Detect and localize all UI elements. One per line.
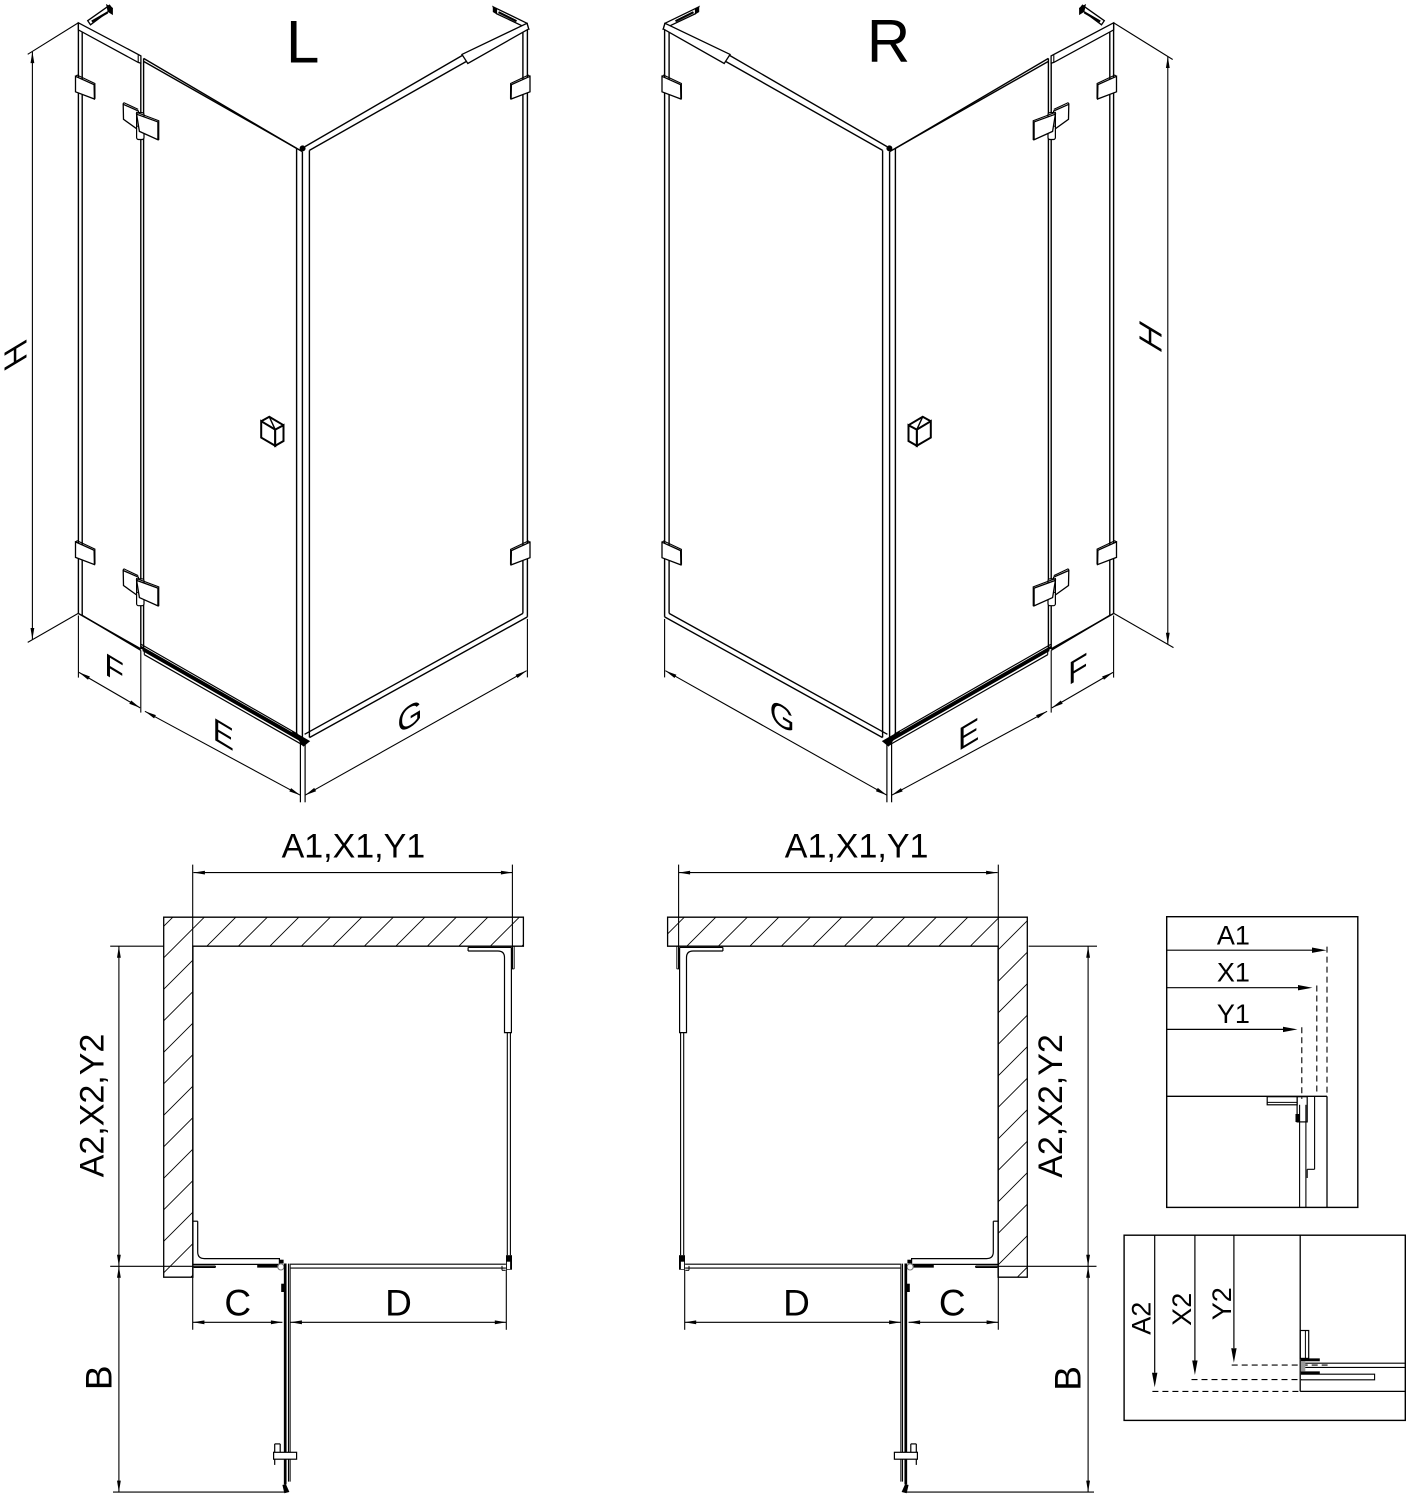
svg-text:L: L <box>286 9 319 76</box>
svg-text:A1,X1,Y1: A1,X1,Y1 <box>785 828 929 866</box>
svg-text:Y2: Y2 <box>1207 1287 1237 1320</box>
svg-text:A1: A1 <box>1217 921 1250 951</box>
svg-text:X1: X1 <box>1217 958 1250 988</box>
svg-text:C: C <box>224 1283 251 1324</box>
svg-text:A2,X2,Y2: A2,X2,Y2 <box>1032 1034 1070 1178</box>
svg-text:A2,X2,Y2: A2,X2,Y2 <box>74 1034 112 1178</box>
svg-text:D: D <box>385 1283 412 1324</box>
svg-text:D: D <box>783 1283 810 1324</box>
svg-text:A2: A2 <box>1126 1302 1156 1335</box>
svg-text:X2: X2 <box>1167 1293 1197 1326</box>
svg-text:Y1: Y1 <box>1217 999 1250 1029</box>
svg-text:B: B <box>78 1365 119 1390</box>
svg-text:R: R <box>867 8 910 75</box>
svg-text:A1,X1,Y1: A1,X1,Y1 <box>282 828 426 866</box>
svg-text:C: C <box>939 1283 966 1324</box>
svg-text:B: B <box>1048 1366 1089 1391</box>
